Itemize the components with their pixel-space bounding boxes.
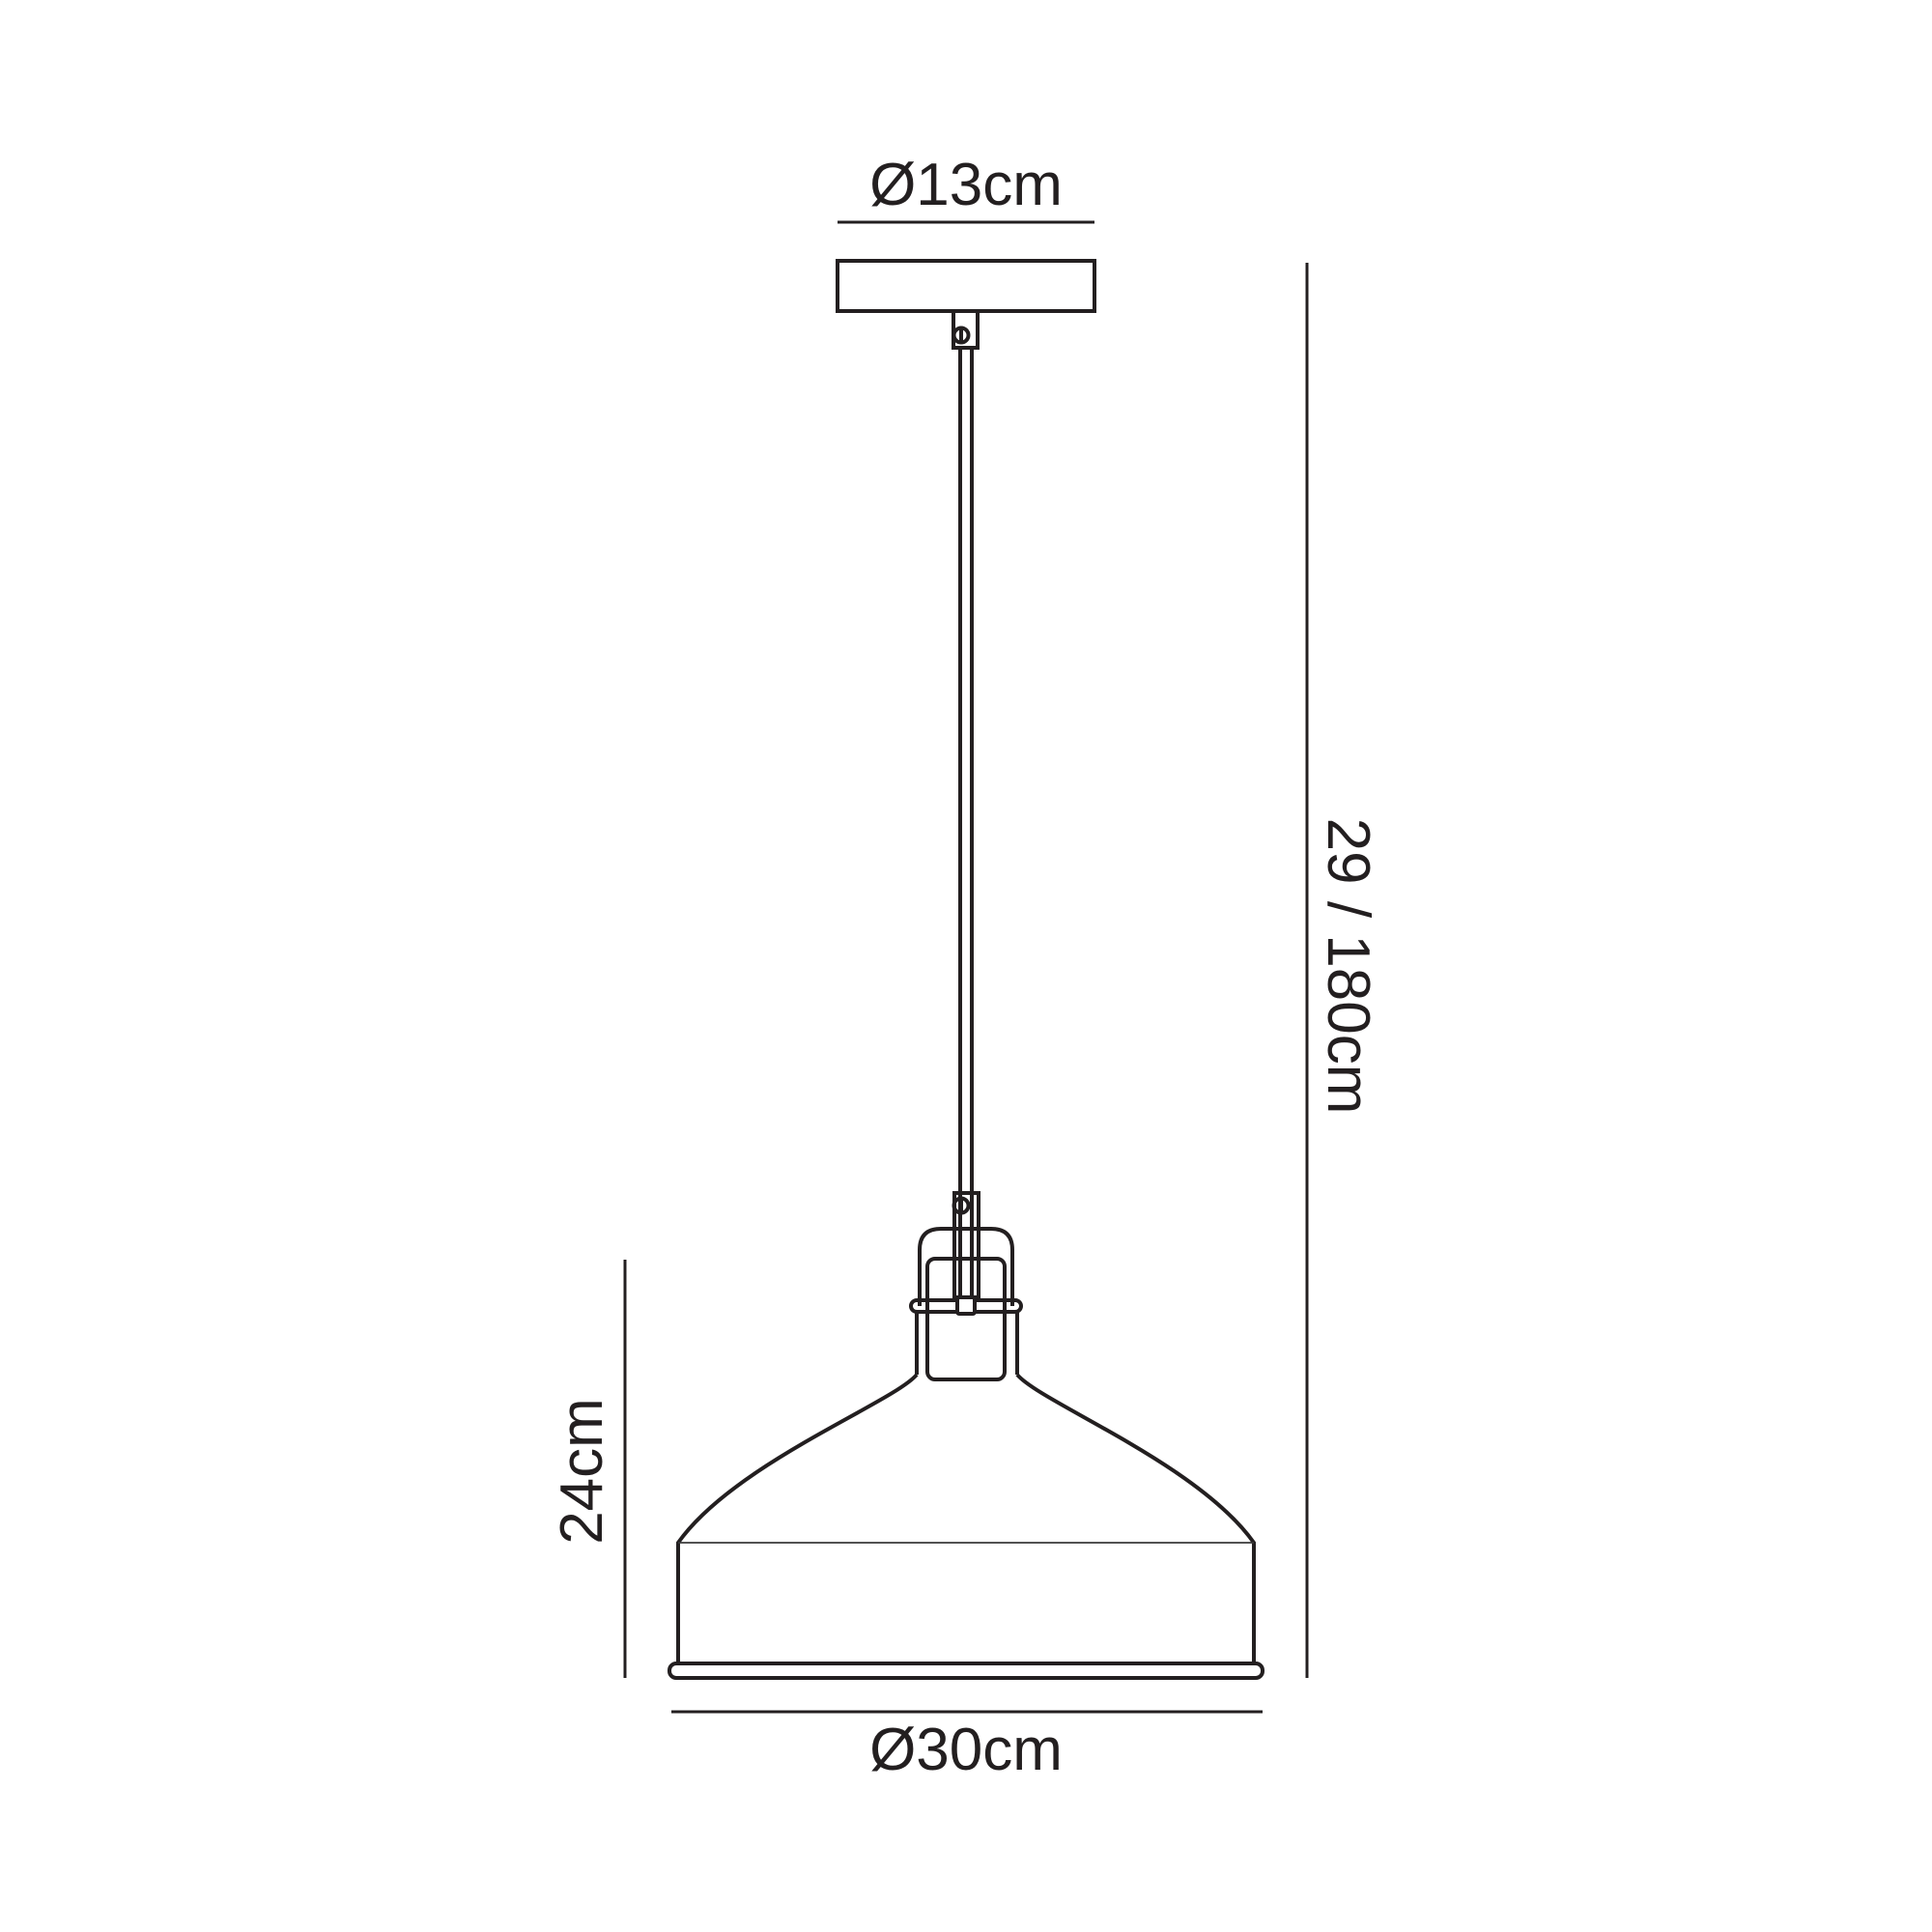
- shade-bottom-rim: [669, 1663, 1263, 1678]
- canopy-diameter-label: Ø13cm: [869, 152, 1063, 218]
- shade-height-label: 24cm: [549, 1398, 615, 1545]
- pendant-lamp-drawing: Ø13cm 29 / 180cm 24cm Ø30cm: [0, 0, 1932, 1932]
- shade-outline-right: [1017, 1375, 1254, 1663]
- drop-height-label: 29 / 180cm: [1315, 818, 1381, 1115]
- strap-nut: [957, 1297, 975, 1314]
- shade-outline-left: [678, 1375, 917, 1663]
- shade-diameter-label: Ø30cm: [869, 1717, 1063, 1783]
- socket-cup: [927, 1259, 1005, 1379]
- pendant-lamp-diagram: Ø13cm 29 / 180cm 24cm Ø30cm: [0, 0, 1932, 1932]
- socket-cage: [920, 1229, 1012, 1306]
- ceiling-canopy-plate: [838, 261, 1094, 311]
